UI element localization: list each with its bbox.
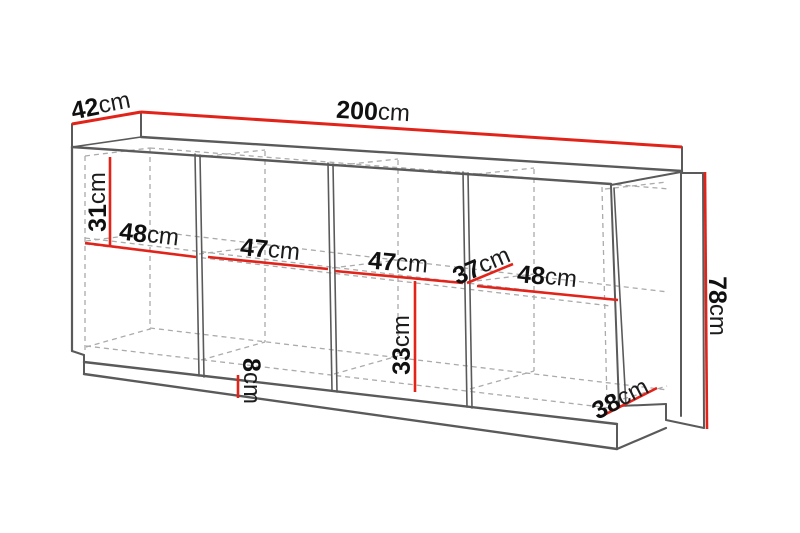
dimension-label-base-depth: 38cm: [587, 373, 653, 425]
plinth-left-step-top: [72, 351, 84, 355]
dimension-label-upper-compartment-height: 31cm: [84, 172, 112, 232]
side-panel-bottom-edge: [666, 420, 704, 428]
dimension-label-height: 78cm: [703, 276, 731, 336]
carcass-right-top-edge: [611, 172, 681, 185]
dimension-label-section1-width: 48cm: [118, 217, 181, 252]
cabinet-drawing: 42cm 200cm 78cm 48cm 47cm 47cm 37cm 48cm…: [0, 0, 800, 533]
plinth-bottom-right-edge: [617, 428, 666, 449]
dimension-labels: 42cm 200cm 78cm 48cm 47cm 47cm 37cm 48cm…: [69, 86, 732, 425]
dimension-label-depth: 42cm: [69, 86, 133, 125]
dimension-label-lower-compartment-height: 33cm: [388, 315, 416, 375]
divider3-right-edge: [468, 173, 472, 408]
dimension-label-section4-width: 48cm: [516, 260, 578, 294]
divider2-left-edge: [328, 163, 332, 391]
divider1-left-edge: [195, 154, 199, 376]
top-panel-left-bottom-edge: [72, 137, 141, 147]
dimension-label-width: 200cm: [335, 95, 410, 127]
plinth-front-bottom-edge: [84, 374, 617, 449]
right-wall-inner-edge: [602, 187, 607, 404]
divider1-right-edge: [200, 155, 204, 377]
carcass-front-top-edge: [72, 147, 611, 184]
divider2-right-edge: [333, 164, 337, 392]
floor-depth-div3: [470, 371, 534, 389]
divider3-left-edge: [463, 172, 467, 407]
hidden-interior-edges: [85, 148, 670, 408]
plinth-front-top-edge: [84, 362, 617, 424]
dimension-label-section3-width: 47cm: [367, 246, 429, 279]
dimension-label-interior-depth: 37cm: [448, 241, 514, 290]
dimension-label-plinth-height: 8cm: [237, 358, 265, 404]
furniture-dimension-diagram: 42cm 200cm 78cm 48cm 47cm 47cm 37cm 48cm…: [0, 0, 800, 533]
floor-front-edge: [86, 346, 610, 408]
floor-depth-left: [86, 329, 150, 347]
